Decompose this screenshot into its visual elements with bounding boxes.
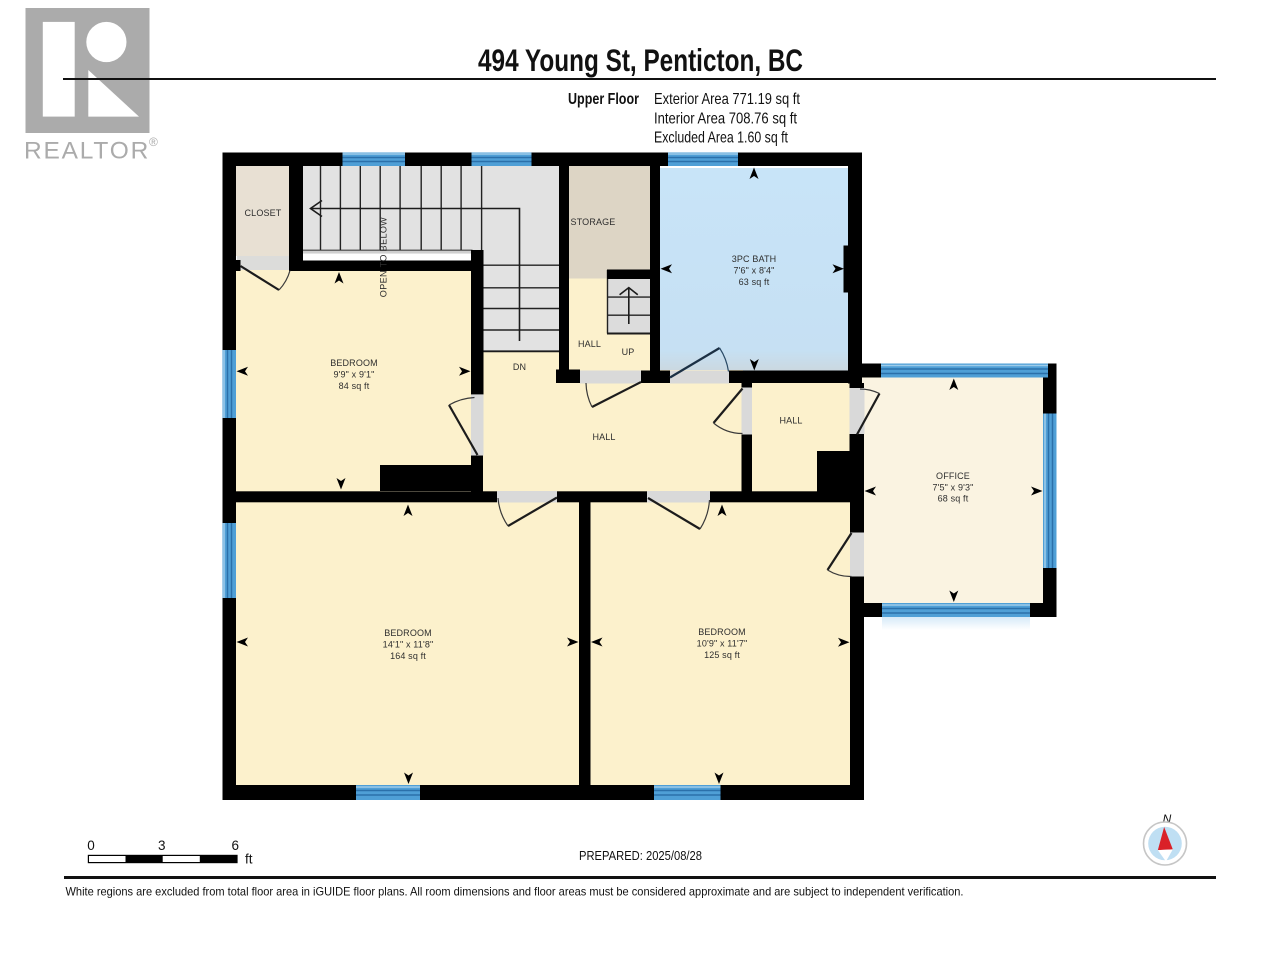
- svg-text:White regions are excluded fro: White regions are excluded from total fl…: [66, 885, 964, 899]
- svg-text:3: 3: [158, 838, 166, 853]
- svg-text:6: 6: [232, 838, 240, 853]
- svg-text:BEDROOM: BEDROOM: [698, 627, 746, 637]
- svg-text:14'1" x 11'8": 14'1" x 11'8": [383, 640, 434, 650]
- svg-text:Upper Floor: Upper Floor: [568, 91, 639, 108]
- svg-text:OFFICE: OFFICE: [936, 471, 970, 481]
- svg-text:CLOSET: CLOSET: [245, 208, 282, 218]
- svg-text:164 sq ft: 164 sq ft: [390, 651, 426, 661]
- svg-text:DN: DN: [513, 362, 526, 372]
- svg-text:HALL: HALL: [592, 432, 615, 442]
- svg-text:7'6" x 8'4": 7'6" x 8'4": [734, 266, 775, 276]
- svg-text:Excluded Area 1.60 sq ft: Excluded Area 1.60 sq ft: [654, 130, 788, 147]
- svg-text:Interior Area 708.76 sq ft: Interior Area 708.76 sq ft: [654, 110, 797, 127]
- svg-text:BEDROOM: BEDROOM: [384, 628, 432, 638]
- svg-text:HALL: HALL: [578, 339, 601, 349]
- svg-text:9'9" x 9'1": 9'9" x 9'1": [334, 370, 375, 380]
- svg-text:OPEN TO BELOW: OPEN TO BELOW: [379, 217, 389, 297]
- svg-text:BEDROOM: BEDROOM: [330, 358, 378, 368]
- svg-text:68 sq ft: 68 sq ft: [938, 494, 969, 504]
- svg-text:125 sq ft: 125 sq ft: [704, 650, 740, 660]
- svg-text:ft: ft: [245, 852, 253, 867]
- svg-text:84 sq ft: 84 sq ft: [339, 381, 370, 391]
- svg-text:PREPARED: 2025/08/28: PREPARED: 2025/08/28: [579, 849, 702, 863]
- svg-text:7'5" x 9'3": 7'5" x 9'3": [933, 482, 974, 492]
- svg-text:10'9" x 11'7": 10'9" x 11'7": [697, 639, 748, 649]
- svg-text:3PC BATH: 3PC BATH: [732, 254, 777, 264]
- svg-text:Exterior Area 771.19 sq ft: Exterior Area 771.19 sq ft: [654, 91, 800, 108]
- svg-text:STORAGE: STORAGE: [571, 217, 616, 227]
- svg-text:HALL: HALL: [779, 416, 802, 426]
- svg-text:63 sq ft: 63 sq ft: [739, 277, 770, 287]
- svg-text:0: 0: [87, 838, 95, 853]
- svg-text:UP: UP: [622, 347, 635, 357]
- svg-text:494 Young St, Penticton, BC: 494 Young St, Penticton, BC: [478, 42, 803, 78]
